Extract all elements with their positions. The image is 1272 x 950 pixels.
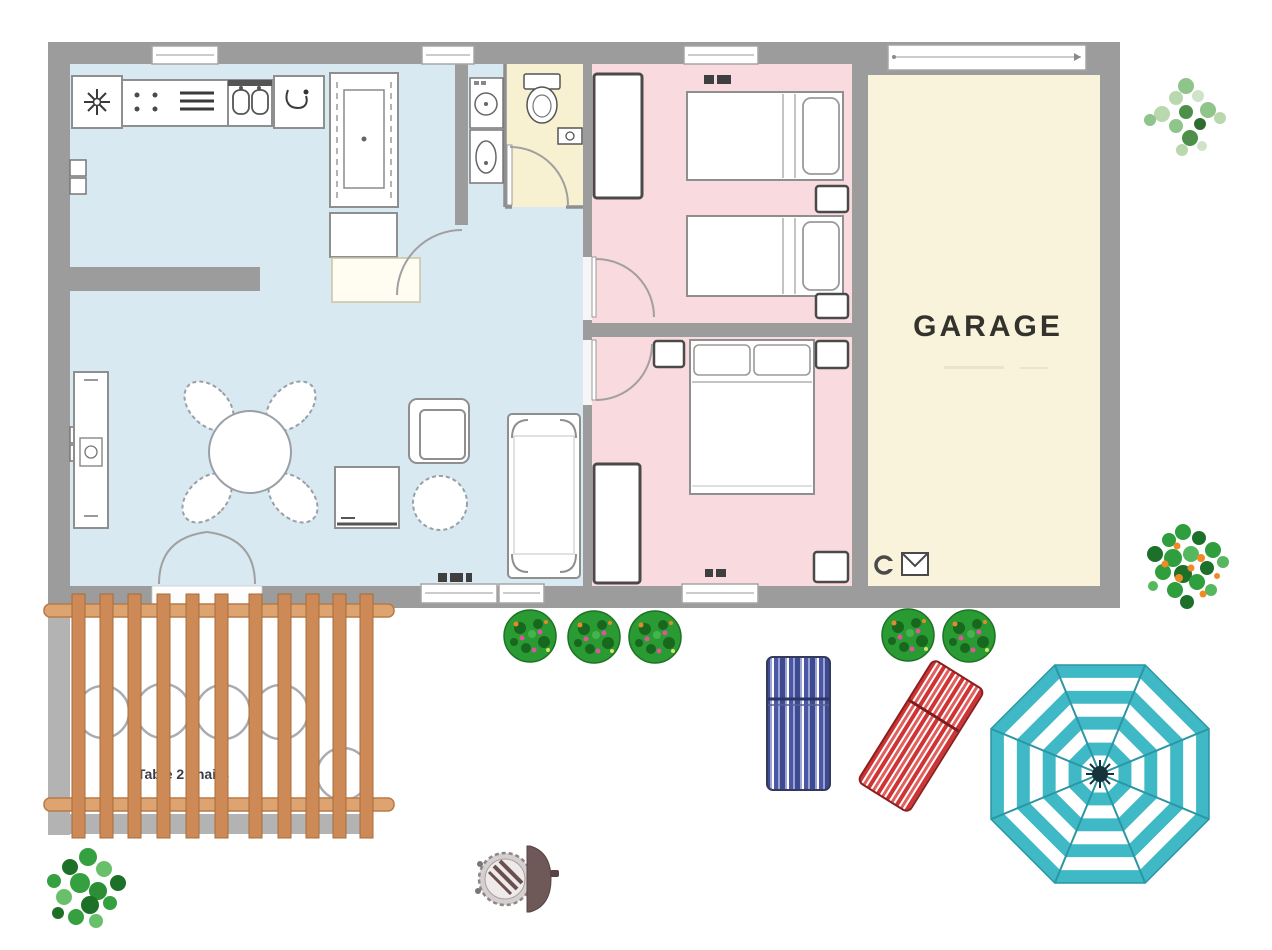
garage-door [888,45,1086,70]
dryer [470,130,503,183]
pergola-slat [215,594,228,838]
single-bed-1 [687,92,843,180]
wall-vent [450,573,463,582]
cooktop-unit [72,76,122,128]
plant [47,848,126,928]
wall-vent [705,569,713,577]
garage-floor-mark [1020,367,1048,369]
pergola-slat [128,594,141,838]
armchair [409,399,469,463]
window-living-s [421,584,497,603]
pillow [754,345,810,375]
window-bedroom2-s [682,584,758,603]
bedroom1-door-opening [583,257,592,320]
tree [1144,78,1226,156]
side-table [413,476,467,530]
window-hall-s [499,584,544,603]
pergola-slat [186,594,199,838]
floor-plan-page: Table 2 chairs [0,0,1272,950]
kitchen-counter [122,80,230,126]
nightstand [654,341,684,367]
bush [943,610,995,662]
bedroom2-door-opening [583,340,592,405]
garage-label: GARAGE [913,310,1063,343]
pergola-slat [249,594,262,838]
utility-envelope-icon [902,553,928,575]
shoe-cabinet [332,258,420,302]
sofa [508,414,580,578]
wardrobe-bedroom1 [594,74,642,198]
pergola-slat [333,594,346,838]
closet [330,73,398,207]
window-bedroom1-n [684,46,758,64]
toilet [524,74,560,123]
parasol [991,665,1209,883]
fruit-tree [1147,524,1229,609]
bush [568,611,620,663]
bedroom2-door-leaf [592,340,596,400]
kitchen-corner-unit [274,76,324,128]
laundry-stack [470,78,503,183]
sun-lounger-blue [767,657,830,790]
pergola-slat [100,594,113,838]
bedroom1-door-leaf [592,257,596,317]
bush [504,610,556,662]
nightstand [816,341,848,368]
wall-vent [716,569,726,577]
pergola [44,594,394,838]
bush [882,609,934,661]
floor-plan: Table 2 chairs [0,0,1272,950]
shelf-unit [74,372,108,528]
nightstand [816,294,848,318]
pillow [803,98,839,174]
grill-lid [527,846,551,912]
washing-machine [470,78,503,128]
single-bed-2 [687,216,843,296]
barbecue-grill [475,846,559,912]
pillow [803,222,839,290]
pergola-slat [306,594,319,838]
dining-table [209,411,291,493]
kitchen-sink [228,80,272,126]
bathroom-sink [558,128,582,144]
pergola-slat [157,594,170,838]
wall-vent [717,75,731,84]
pergola-slat [72,594,85,838]
tv-cabinet [335,467,399,528]
hall-cabinet [330,213,397,257]
bush [629,611,681,663]
wall-vent [438,573,447,582]
nightstand [814,552,848,582]
wall-vent [704,75,714,84]
window-kitchen-n [152,46,218,64]
wall-vent [466,573,472,582]
kitchen [72,76,324,128]
bathroom-door-leaf [507,145,512,205]
garage-floor-mark [944,366,1004,369]
lid-handle [550,870,559,877]
window-hall-n [422,46,474,64]
pergola-slat [278,594,291,838]
double-bed [690,340,814,494]
sun-lounger-red [857,659,984,813]
pillow [694,345,750,375]
nightstand [816,186,848,212]
pergola-slat [360,594,373,838]
wardrobe-bedroom2 [594,464,640,583]
